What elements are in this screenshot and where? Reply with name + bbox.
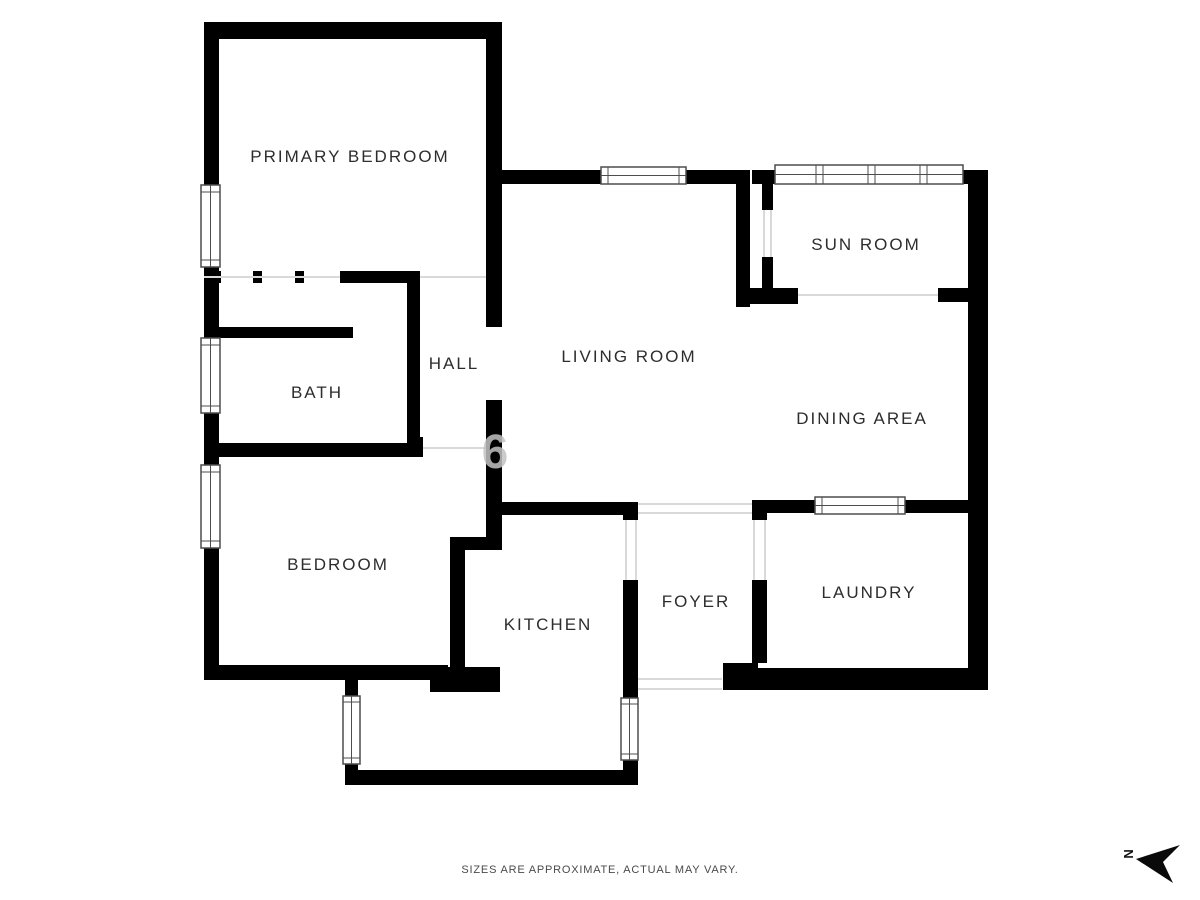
window-icon <box>201 338 220 413</box>
wall-segment <box>486 170 602 184</box>
disclaimer-text: SIZES ARE APPROXIMATE, ACTUAL MAY VARY. <box>461 864 738 876</box>
wall-segment <box>938 288 970 302</box>
watermark-digit: 6 <box>482 426 509 479</box>
wall-segment <box>736 288 798 304</box>
north-arrow-icon <box>1136 845 1180 883</box>
wall-segment <box>752 170 777 184</box>
wall-segment <box>762 183 773 210</box>
wall-segment <box>685 170 738 184</box>
wall-segment <box>736 170 750 307</box>
window-icon <box>775 165 963 184</box>
wall-segment <box>723 663 758 690</box>
north-label: N <box>1121 849 1136 858</box>
walls-layer <box>204 22 988 785</box>
wall-segment <box>407 283 420 443</box>
wall-segment <box>430 667 500 692</box>
room-label-primary-bedroom: PRIMARY BEDROOM <box>250 147 449 166</box>
wall-segment <box>204 327 353 338</box>
room-label-bedroom: BEDROOM <box>287 555 389 574</box>
room-labels-layer: PRIMARY BEDROOM SUN ROOM LIVING ROOM DIN… <box>250 147 928 634</box>
north-arrow: N <box>1121 845 1180 883</box>
floor-plan-page: PRIMARY BEDROOM SUN ROOM LIVING ROOM DIN… <box>0 0 1200 900</box>
wall-segment <box>752 500 815 513</box>
wall-segment <box>204 548 219 678</box>
wall-segment <box>345 680 358 696</box>
window-icon <box>601 167 686 184</box>
wall-segment <box>623 502 638 520</box>
window-icon <box>621 698 638 760</box>
room-label-sun-room: SUN ROOM <box>811 235 921 254</box>
wall-segment <box>204 22 219 185</box>
room-label-dining-area: DINING AREA <box>796 409 928 428</box>
wall-segment <box>488 502 638 515</box>
wall-segment <box>905 500 988 513</box>
room-label-bath: BATH <box>291 383 343 402</box>
wall-segment <box>204 413 219 465</box>
wall-segment <box>758 668 988 690</box>
room-label-foyer: FOYER <box>662 592 731 611</box>
wall-segment <box>968 170 988 690</box>
wall-segment <box>410 437 423 445</box>
room-label-living-room: LIVING ROOM <box>561 347 696 366</box>
wall-segment <box>340 271 420 283</box>
wall-segment <box>623 580 638 698</box>
wall-segment <box>345 770 638 785</box>
wall-segment <box>204 22 502 39</box>
wall-segment <box>204 443 423 457</box>
wall-segment <box>450 537 465 667</box>
room-label-kitchen: KITCHEN <box>504 615 593 634</box>
wall-segment <box>204 665 448 680</box>
window-icon <box>343 696 360 764</box>
room-label-hall: HALL <box>429 354 480 373</box>
window-icon <box>201 465 220 548</box>
window-icon <box>201 185 220 267</box>
floor-plan-svg: PRIMARY BEDROOM SUN ROOM LIVING ROOM DIN… <box>0 0 1200 900</box>
wall-segment <box>752 580 767 663</box>
window-icon <box>815 497 905 514</box>
room-label-laundry: LAUNDRY <box>822 583 917 602</box>
